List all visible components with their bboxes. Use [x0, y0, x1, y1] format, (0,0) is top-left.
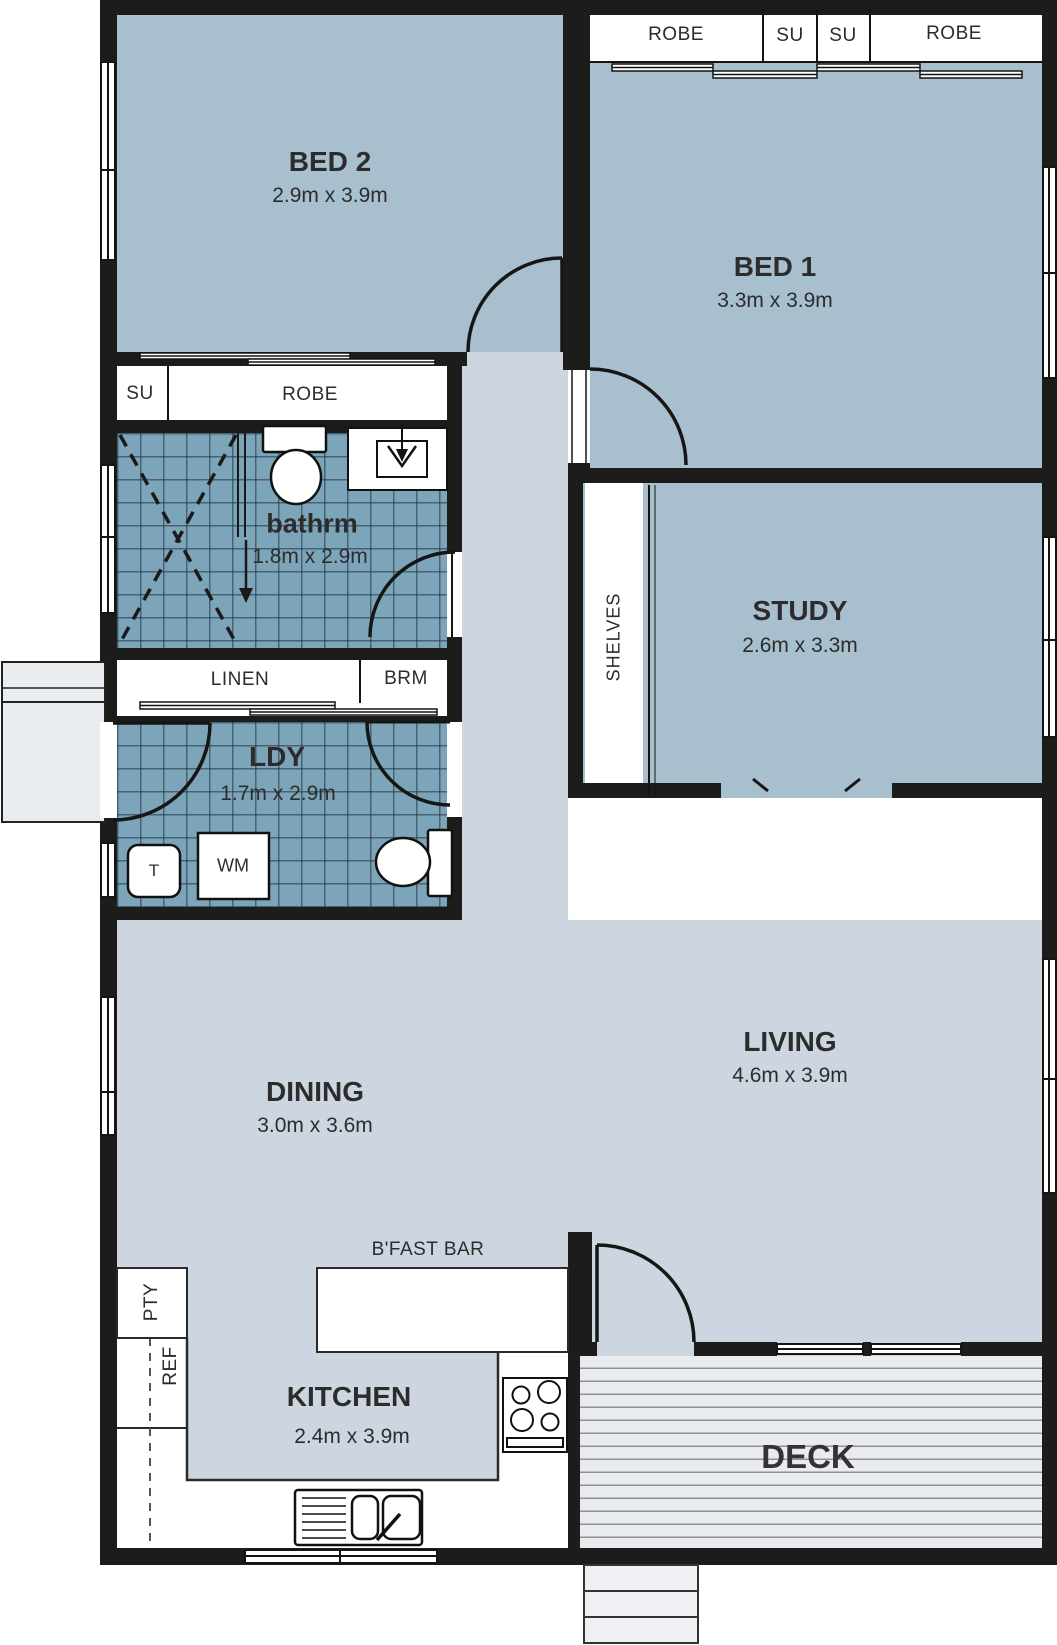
su-label: SU [829, 25, 856, 47]
robe-label: ROBE [648, 24, 704, 46]
robe-label: ROBE [926, 23, 982, 45]
shower [120, 433, 253, 643]
room-label-bathroom: bathrm [266, 509, 358, 540]
room-dims-laundry: 1.7m x 2.9m [220, 782, 336, 806]
robe-label: ROBE [282, 384, 338, 406]
bfast-bar-label: B'FAST BAR [372, 1239, 485, 1261]
toilet [376, 830, 452, 896]
window [101, 62, 1056, 1563]
room-dims-living: 4.6m x 3.9m [732, 1064, 848, 1088]
plan-symbols [0, 0, 1057, 1645]
pantry-label: PTY [141, 1283, 163, 1321]
cased-opening-tick [753, 779, 860, 791]
su-label: SU [126, 383, 153, 405]
cooktop [503, 1378, 567, 1452]
washing-machine-label: WM [217, 856, 249, 877]
linen-label: LINEN [211, 669, 269, 691]
toilet [263, 426, 326, 504]
room-label-living: LIVING [743, 1026, 836, 1058]
deck-steps [584, 1565, 698, 1643]
fridge-label: REF [160, 1346, 182, 1386]
laundry-door-opening [100, 722, 117, 818]
sliding-door-track [140, 64, 1022, 715]
room-dims-bed1: 3.3m x 3.9m [717, 289, 833, 313]
brm-label: BRM [384, 668, 428, 690]
floor-plan: BED 2 2.9m x 3.9m BED 1 3.3m x 3.9m STUD… [0, 0, 1057, 1645]
tub-label: T [149, 861, 159, 881]
room-label-deck: DECK [761, 1438, 855, 1476]
room-label-laundry: LDY [249, 741, 305, 773]
vanity-basin-icon [348, 424, 447, 490]
room-label-bed2: BED 2 [289, 146, 371, 178]
kitchen-sink [295, 1490, 422, 1545]
door-swing [113, 258, 694, 1342]
room-dims-bed2: 2.9m x 3.9m [272, 184, 388, 208]
room-label-bed1: BED 1 [734, 251, 816, 283]
room-dims-kitchen: 2.4m x 3.9m [294, 1425, 410, 1449]
room-label-study: STUDY [753, 595, 848, 627]
room-label-kitchen: KITCHEN [287, 1381, 411, 1413]
shelves-label: SHELVES [604, 593, 625, 682]
room-dims-bathroom: 1.8m x 2.9m [252, 545, 368, 569]
su-label: SU [776, 25, 803, 47]
side-porch [2, 662, 105, 822]
room-dims-dining: 3.0m x 3.6m [257, 1114, 373, 1138]
room-dims-study: 2.6m x 3.3m [742, 634, 858, 658]
room-label-dining: DINING [266, 1076, 364, 1108]
